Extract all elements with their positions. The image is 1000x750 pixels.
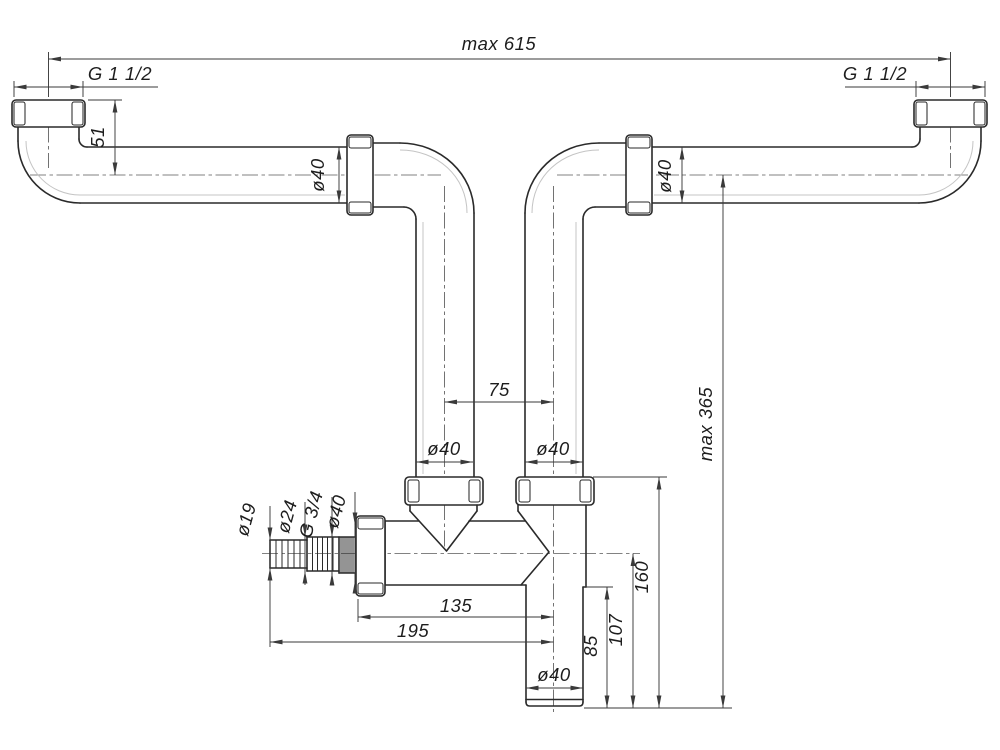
riser-spacing-label: 75 <box>488 379 510 400</box>
drawing-canvas: max 615 G 1 1/2 G 1 1/2 51 ø40 ø40 75 ø4… <box>0 0 1000 750</box>
hose-barb-small-label: ø19 <box>231 500 260 538</box>
right-pipe-dia-label: ø40 <box>654 159 675 193</box>
technical-drawing: max 615 G 1 1/2 G 1 1/2 51 ø40 ø40 75 ø4… <box>0 0 1000 750</box>
outlet-160-label: 160 <box>631 561 652 594</box>
left-pipe-dia-label: ø40 <box>307 158 328 192</box>
inner-wall-lines <box>26 141 973 474</box>
right-inlet-cone <box>518 511 549 585</box>
body-len-195-label: 195 <box>397 620 430 641</box>
outlet-107-label: 107 <box>605 614 626 647</box>
right-riser-dia-label: ø40 <box>536 438 570 459</box>
left-thread-label: G 1 1/2 <box>88 63 152 84</box>
overall-height-label: max 365 <box>695 387 716 462</box>
right-inlet-pipe <box>525 100 987 478</box>
thread-hatch <box>341 537 355 573</box>
left-riser-dia-label: ø40 <box>427 438 461 459</box>
centerlines <box>30 100 968 712</box>
left-inlet-pipe <box>12 100 474 478</box>
inlet-drop-label: 51 <box>87 126 108 148</box>
tee-body <box>385 477 594 587</box>
dimension-labels: max 615 G 1 1/2 G 1 1/2 51 ø40 ø40 75 ø4… <box>87 33 907 685</box>
outlet-85-label: 85 <box>580 635 601 657</box>
left-inlet-cone <box>410 511 477 551</box>
outlet-dia-label: ø40 <box>537 664 571 685</box>
right-thread-label: G 1 1/2 <box>843 63 907 84</box>
overall-width-label: max 615 <box>462 33 537 54</box>
body-len-135-label: 135 <box>440 595 473 616</box>
side-thread-label: G 3/4 <box>294 489 327 541</box>
